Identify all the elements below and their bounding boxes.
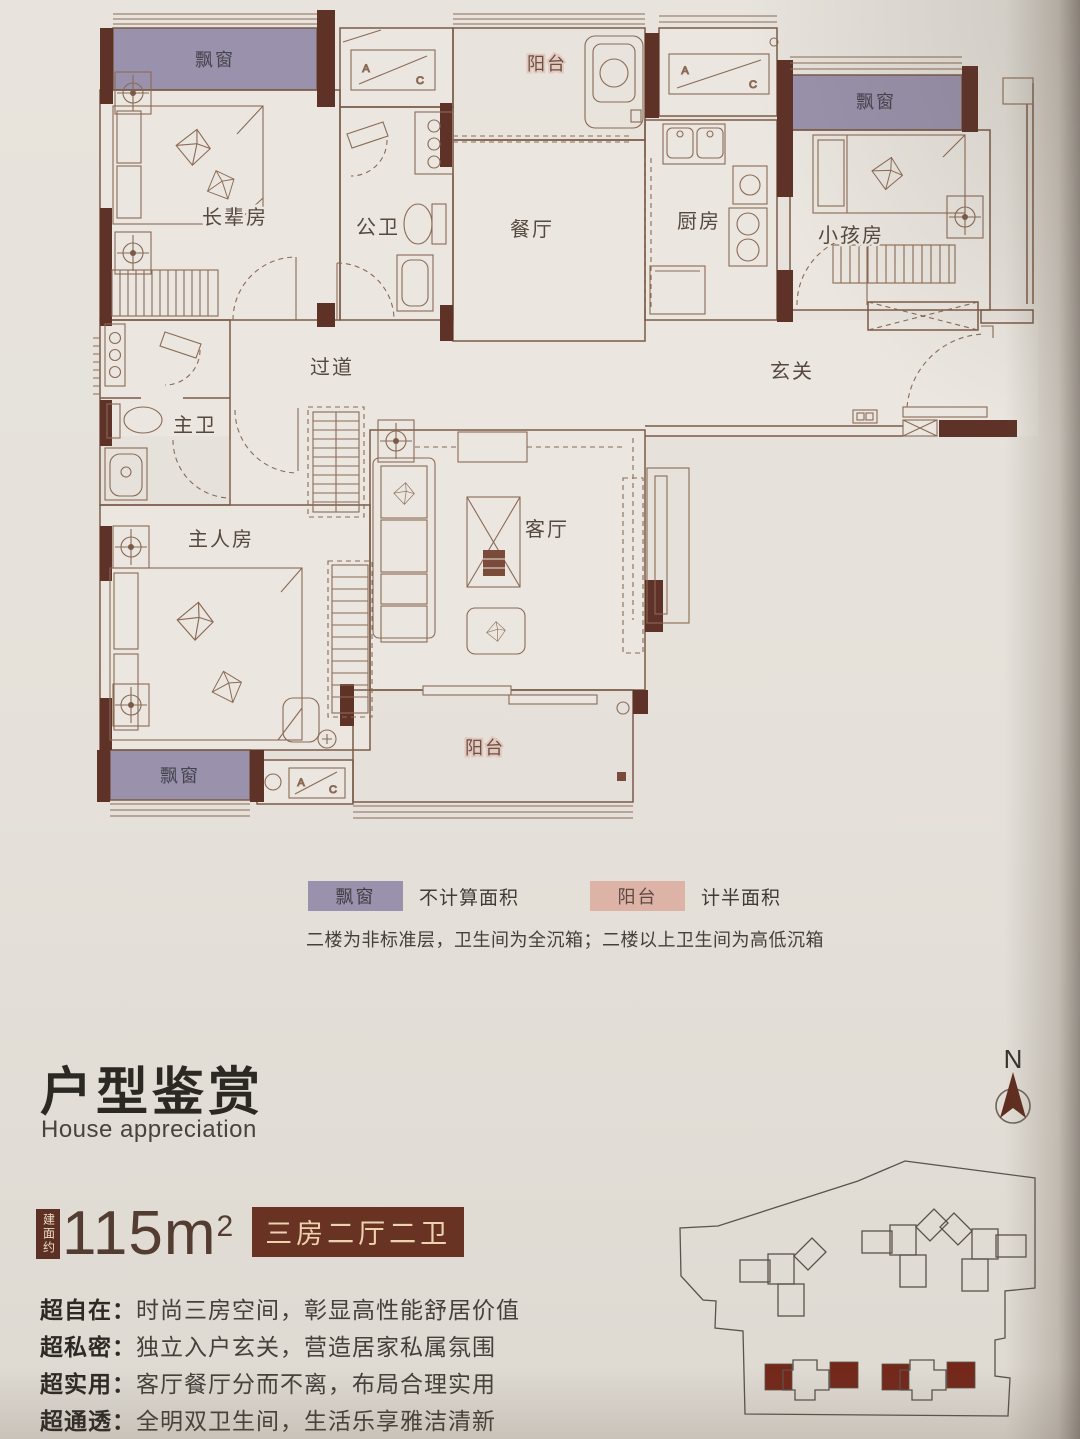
site-map — [668, 1148, 1070, 1430]
ac2-c: C — [749, 79, 757, 91]
room-label-foyer: 玄关 — [770, 360, 814, 383]
bay-window-label-bl: 飘窗 — [160, 766, 200, 786]
north-compass: N — [982, 1042, 1044, 1142]
feature-text: 时尚三房空间，彰显高性能舒居价值 — [136, 1297, 520, 1323]
room-fills — [100, 28, 1038, 804]
ac3-a: A — [297, 777, 305, 789]
page-title: 户型鉴赏 — [40, 1050, 264, 1125]
area-value: 115m2 — [62, 1206, 234, 1262]
area-prefix-badge: 建面约 — [36, 1209, 60, 1259]
feature-text: 全明双卫生间，生活乐享雅洁清新 — [136, 1408, 496, 1434]
legend-balcony-swatch: 阳台 — [590, 881, 685, 911]
top-balcony-washer — [585, 36, 643, 128]
room-label-dining: 餐厅 — [510, 218, 554, 241]
legend-bay-window-desc: 不计算面积 — [419, 883, 519, 910]
bay-window-label-tr: 飘窗 — [856, 92, 896, 112]
room-label-kids: 小孩房 — [818, 224, 884, 247]
feature-item: 超实用：客厅餐厅分而不离，布局合理实用 — [40, 1366, 600, 1403]
site-buildings — [740, 1209, 1026, 1400]
room-label-living: 客厅 — [525, 518, 569, 541]
page-subtitle: House appreciation — [41, 1116, 257, 1144]
highlighted-building — [765, 1360, 858, 1400]
balcony-label-bottom: 阳台 — [465, 738, 505, 758]
layout-tag: 三房二厅二卫 — [252, 1207, 464, 1257]
area-exponent: 2 — [217, 1210, 235, 1243]
floor-plan: A C A C — [85, 8, 1040, 820]
room-label-master: 主人房 — [188, 528, 254, 551]
room-label-corridor: 过道 — [310, 356, 354, 379]
feature-list: 超自在：时尚三房空间，彰显高性能舒居价值 超私密：独立入户玄关，营造居家私属氛围… — [40, 1292, 600, 1439]
feature-label: 超自在： — [40, 1297, 136, 1323]
ac1-a: A — [362, 63, 370, 75]
feature-text: 客厅餐厅分而不离，布局合理实用 — [136, 1371, 496, 1397]
legend-bay-window-swatch: 飘窗 — [308, 881, 403, 911]
ac2-a: A — [681, 65, 689, 77]
feature-label: 超实用： — [40, 1371, 136, 1397]
feature-item: 超通透：全明双卫生间，生活乐享雅洁清新 — [40, 1403, 600, 1439]
compass-n-label: N — [1004, 1044, 1023, 1074]
ac3-c: C — [329, 784, 337, 796]
room-label-master-bath: 主卫 — [173, 414, 217, 437]
room-label-kitchen: 厨房 — [677, 210, 721, 233]
feature-text: 独立入户玄关，营造居家私属氛围 — [136, 1334, 496, 1360]
room-label-elder: 长辈房 — [202, 206, 268, 229]
area-row: 建面约 115m2 三房二厅二卫 — [36, 1206, 464, 1262]
ac1-c: C — [416, 75, 424, 87]
bay-window-label-tl: 飘窗 — [195, 50, 235, 70]
feature-label: 超通透： — [40, 1408, 136, 1434]
feature-item: 超自在：时尚三房空间，彰显高性能舒居价值 — [40, 1292, 600, 1329]
feature-label: 超私密： — [40, 1334, 136, 1360]
feature-item: 超私密：独立入户玄关，营造居家私属氛围 — [40, 1329, 600, 1366]
floor-note: 二楼为非标准层，卫生间为全沉箱；二楼以上卫生间为高低沉箱 — [306, 926, 824, 952]
room-label-guest-bath: 公卫 — [356, 217, 400, 239]
north-arrow-icon — [1000, 1072, 1026, 1118]
legend-bay-window: 飘窗 不计算面积 — [308, 881, 519, 911]
highlighted-building — [882, 1360, 975, 1400]
brochure-page: A C A C — [0, 0, 1080, 1439]
legend-balcony: 阳台 计半面积 — [590, 881, 781, 911]
legend-balcony-desc: 计半面积 — [701, 883, 781, 910]
area-unit: m — [164, 1199, 217, 1268]
balcony-label-top: 阳台 — [527, 54, 567, 74]
area-number: 115 — [62, 1199, 164, 1268]
